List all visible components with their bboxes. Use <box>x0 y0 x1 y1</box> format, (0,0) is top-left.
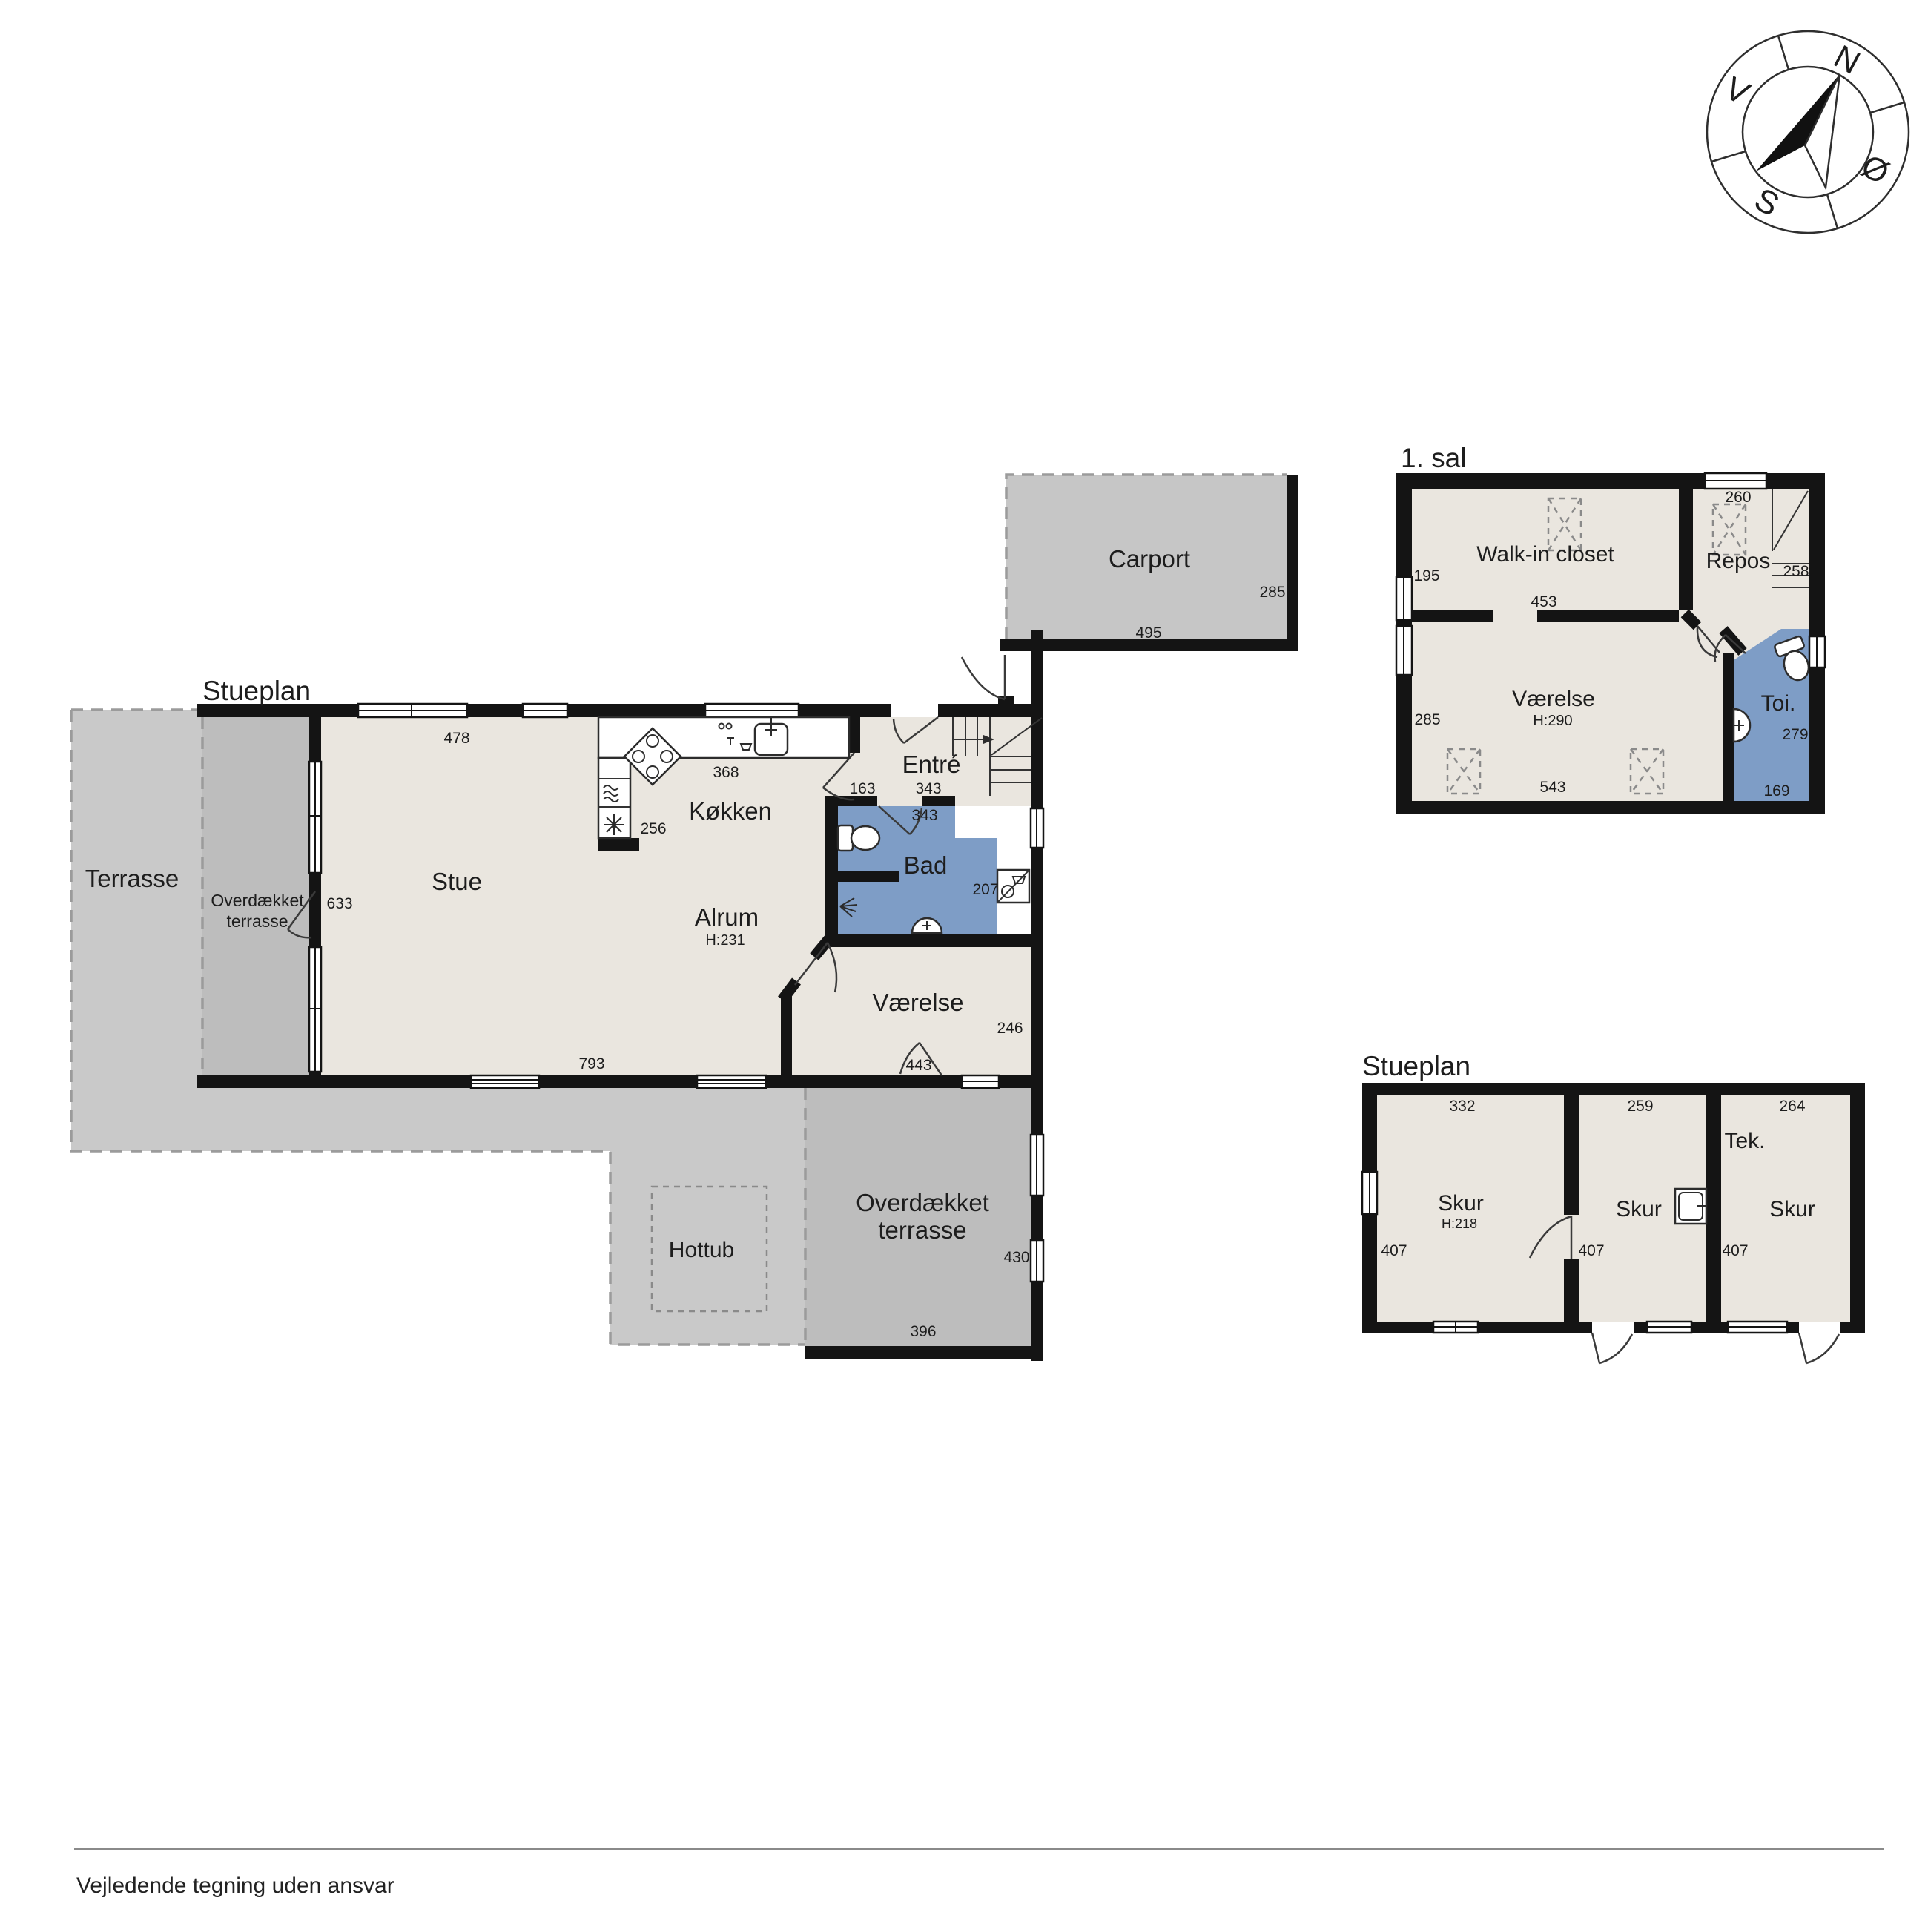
window <box>1362 1172 1377 1214</box>
water-heater-icon <box>1675 1189 1706 1224</box>
floor-plan-canvas: N Ø S V Stueplan Terrasse Overdækket ter… <box>0 0 1928 1928</box>
room-label-entre: Entré <box>902 751 961 778</box>
room-label-carport: Carport <box>1109 545 1190 573</box>
dim-vaerelse-width: 443 <box>905 1057 931 1074</box>
plan-title-outbuilding: Stueplan <box>1362 1051 1470 1081</box>
window <box>358 704 467 717</box>
wall-toi-left <box>1723 653 1734 801</box>
dim-entre-a: 163 <box>849 780 875 797</box>
room-label-bad: Bad <box>904 851 948 879</box>
room-label-alrum: Alrum <box>695 903 759 931</box>
room-label-walk-in: Walk-in closet <box>1476 542 1614 567</box>
dim-stue-top: 478 <box>443 730 469 747</box>
room-label-vaerelse-1sal: Værelse <box>1512 687 1595 711</box>
dim-skur-b-left: 407 <box>1578 1242 1604 1259</box>
terrasse-south-strip <box>202 1088 610 1151</box>
footer-disclaimer: Vejledende tegning uden ansvar <box>76 1873 394 1898</box>
room-height-alrum: H:231 <box>705 932 745 949</box>
wall-entre-bad-b <box>922 796 955 806</box>
dim-carport-width: 495 <box>1135 624 1161 642</box>
dim-toi-right: 279 <box>1782 726 1808 743</box>
dim-vaerelse-depth: 246 <box>997 1020 1023 1037</box>
washing-machine-icon <box>997 870 1029 903</box>
dim-vaerelse1sal-left: 285 <box>1414 711 1440 728</box>
bad-utility-niche <box>955 806 1031 838</box>
passage-door-stub <box>998 696 1014 705</box>
plan-title-ground: Stueplan <box>202 676 311 706</box>
dim-skur-a-top: 332 <box>1449 1098 1475 1115</box>
dim-skur-a-left: 407 <box>1381 1242 1407 1259</box>
window <box>705 704 799 717</box>
room-label-skur-b: Skur <box>1616 1197 1662 1221</box>
skur-door-gap-2 <box>1799 1322 1840 1333</box>
room-label-toi: Toi. <box>1761 691 1796 716</box>
window <box>1705 473 1766 489</box>
dim-stue-door: 633 <box>326 895 352 912</box>
window <box>1809 636 1825 667</box>
dim-overdaekket-syd-width: 396 <box>910 1323 936 1340</box>
window <box>1031 1135 1043 1196</box>
room-label-overdaekket-syd-1: Overdækket <box>856 1189 989 1216</box>
passage-door-swing <box>962 657 1005 699</box>
dim-entre-b: 343 <box>915 780 941 797</box>
wall-skur-b-c <box>1706 1083 1721 1322</box>
dim-skur-b-top: 259 <box>1627 1098 1653 1115</box>
terrasse-area <box>71 710 202 1151</box>
plan-title-first-floor: 1. sal <box>1401 443 1466 473</box>
skur-door1-swing <box>1599 1334 1632 1363</box>
wall-bad-vaerelse <box>825 934 1043 947</box>
window <box>471 1075 539 1088</box>
footer: Vejledende tegning uden ansvar <box>74 1849 1884 1898</box>
room-label-repos: Repos <box>1706 549 1771 573</box>
dim-bad-width: 343 <box>911 807 937 824</box>
dim-walkin-left: 195 <box>1413 567 1439 584</box>
hottub-terrace-area <box>610 1088 805 1345</box>
skur-door2-leaf <box>1799 1333 1806 1363</box>
window <box>309 762 321 873</box>
wall-bad-left <box>825 796 838 944</box>
dim-toi-width: 169 <box>1763 782 1789 799</box>
room-label-koekken: Køkken <box>689 797 772 825</box>
room-label-vaerelse: Værelse <box>873 989 964 1016</box>
room-label-terrasse: Terrasse <box>85 865 179 892</box>
window <box>1396 626 1412 675</box>
window <box>1647 1322 1691 1333</box>
room-label-hottub: Hottub <box>669 1238 734 1262</box>
wall-skur-a-b-lower <box>1564 1259 1579 1322</box>
dim-skur-c-left: 407 <box>1722 1242 1748 1259</box>
room-height-skur-a: H:218 <box>1442 1216 1477 1231</box>
dim-bottom: 793 <box>578 1055 604 1072</box>
room-height-vaerelse-1sal: H:290 <box>1533 713 1572 729</box>
wall-walkin-repos <box>1679 489 1693 610</box>
compass-label-east: Ø <box>1855 148 1895 191</box>
room-label-stue: Stue <box>432 868 482 895</box>
freezer-icon <box>604 814 624 835</box>
dim-vaerelse1sal-width: 543 <box>1539 779 1565 796</box>
bad-shower-partition <box>825 871 899 882</box>
room-label-overdaekket-syd-2: terrasse <box>878 1216 966 1244</box>
window <box>309 947 321 1072</box>
window <box>1728 1322 1787 1333</box>
dim-bad-depth: 207 <box>972 881 998 898</box>
carport-east-wall <box>1287 475 1298 651</box>
floor-plan-page: N Ø S V Stueplan Terrasse Overdækket ter… <box>0 0 1928 1928</box>
skur-door-gap-1 <box>1592 1322 1634 1333</box>
dim-walkin-width: 453 <box>1531 593 1556 610</box>
wall-alrum-vaerelse <box>781 994 792 1075</box>
compass-rose: N Ø S V <box>1707 31 1909 233</box>
dim-koekken-depth: 256 <box>640 820 666 837</box>
room-label-overdaekket-vest-2: terrasse <box>226 911 288 931</box>
window <box>1396 577 1412 620</box>
window <box>697 1075 766 1088</box>
wall-koekken-entre <box>849 704 860 753</box>
window <box>1433 1322 1478 1333</box>
room-label-skur-c: Skur <box>1769 1197 1815 1221</box>
room-label-skur-a: Skur <box>1438 1191 1484 1216</box>
toilet-icon <box>838 825 879 851</box>
room-label-tek: Tek. <box>1724 1129 1765 1153</box>
window <box>1031 808 1043 848</box>
window <box>1031 1240 1043 1282</box>
dim-overdaekket-syd-depth: 430 <box>1003 1249 1029 1266</box>
skur-door1-leaf <box>1592 1333 1599 1363</box>
dim-repos-top: 260 <box>1725 489 1751 506</box>
wall-skur-a-b-upper <box>1564 1083 1579 1215</box>
dim-koekken-width: 368 <box>713 764 739 781</box>
dim-skur-c-top: 264 <box>1779 1098 1805 1115</box>
kitchen-stub-wall <box>598 838 639 851</box>
dim-repos-right: 258 <box>1783 563 1809 580</box>
dim-carport-depth: 285 <box>1259 584 1285 601</box>
skur-door2-swing <box>1806 1334 1839 1363</box>
room-label-overdaekket-vest-1: Overdækket <box>211 891 304 910</box>
window <box>962 1075 999 1088</box>
window <box>523 704 567 717</box>
